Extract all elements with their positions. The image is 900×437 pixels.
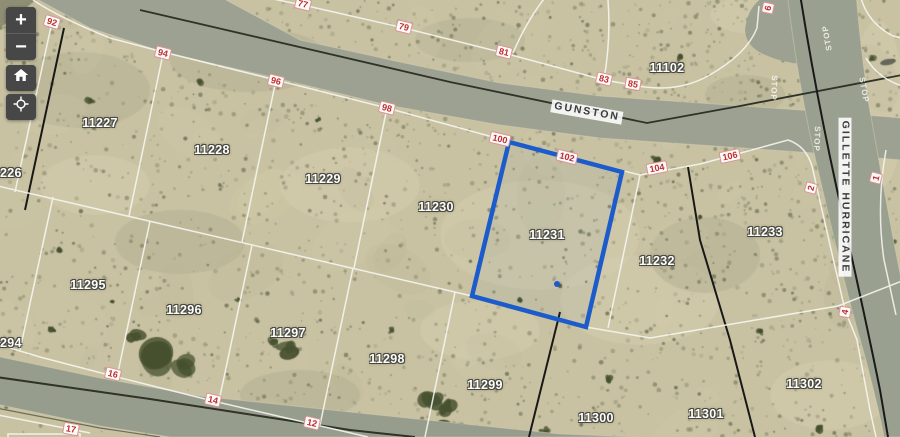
zoom-in-button[interactable]: + xyxy=(6,7,36,33)
home-icon xyxy=(12,66,30,90)
home-button[interactable] xyxy=(6,65,36,91)
map-viewport[interactable]: 1122711228112291123011231112321123311102… xyxy=(0,0,900,437)
zoom-out-button[interactable]: − xyxy=(6,34,36,60)
selected-parcel xyxy=(472,142,622,327)
parcel-overlay xyxy=(0,0,900,437)
map-controls: + − xyxy=(6,7,36,120)
zoom-control: + − xyxy=(6,7,36,60)
selected-parcel-outline[interactable] xyxy=(472,142,622,327)
selected-parcel-point xyxy=(554,281,560,287)
parcel-lines xyxy=(0,0,900,437)
crosshair-icon xyxy=(12,95,30,119)
locate-button[interactable] xyxy=(6,94,36,120)
